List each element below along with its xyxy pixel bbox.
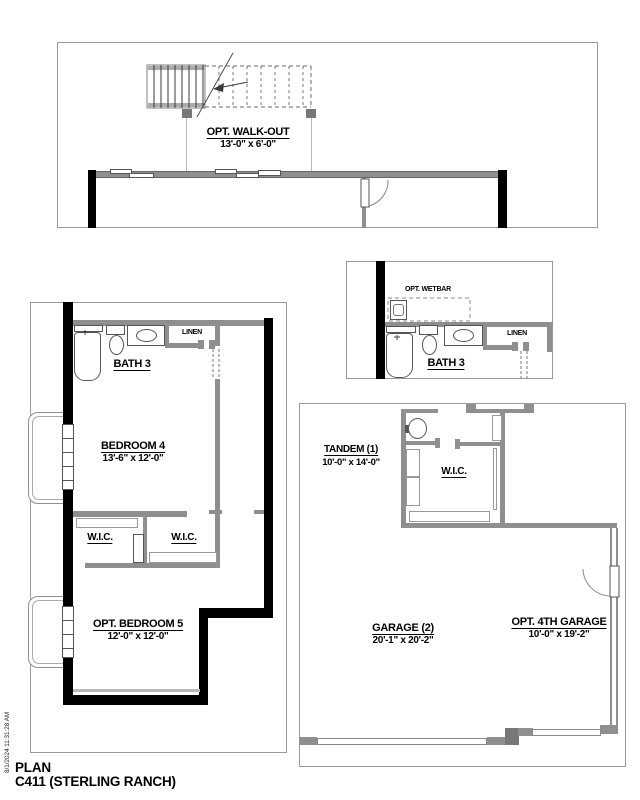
floor-plan-sheet: OPT. WALK-OUT 13'-0" x 6'-0" OPT. WETBAR… — [0, 0, 640, 800]
plan-name: C411 (STERLING RANCH) — [15, 775, 176, 789]
plan-label: PLAN — [15, 761, 51, 775]
wetbar-dashed-outline — [388, 298, 470, 321]
door-swing — [361, 179, 388, 207]
staircase — [147, 53, 311, 117]
dashed-door-opening — [521, 351, 527, 378]
tub-faucet-marks — [82, 330, 400, 340]
print-timestamp: 8/1/2024 11:31:28 AM — [4, 712, 11, 773]
garage-door-swing — [583, 566, 619, 597]
dashed-door-opening — [213, 349, 219, 379]
plan-linework — [0, 0, 640, 800]
